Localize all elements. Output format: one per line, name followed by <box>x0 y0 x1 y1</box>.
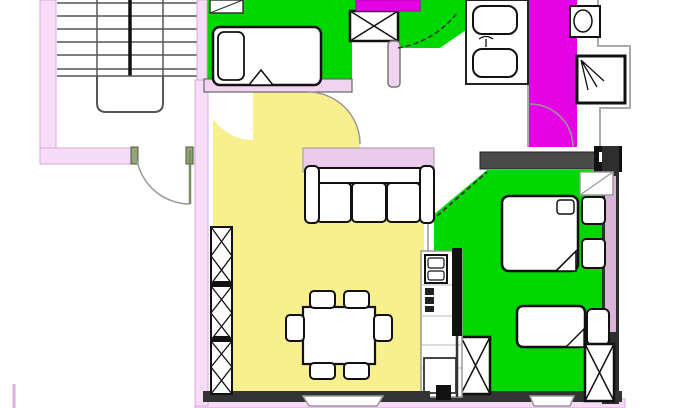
hallway-west-wall <box>195 80 208 406</box>
stove-knob <box>425 306 434 312</box>
stair-left-wall <box>40 0 56 164</box>
nightstand-1 <box>582 197 605 224</box>
stair-right-wall <box>197 0 207 80</box>
sofa-armrest <box>420 166 434 223</box>
bed-double-pillow <box>557 200 574 214</box>
sofa-seat <box>352 183 386 222</box>
sofa-armrest <box>305 166 319 223</box>
wall-unit <box>211 341 232 394</box>
toilet <box>473 6 517 34</box>
wall-unit-joint <box>213 336 230 342</box>
stair-door-opening <box>136 146 188 166</box>
window-livingroom <box>303 396 383 406</box>
dining-chair <box>344 363 369 379</box>
floor-plan-svg <box>0 0 680 408</box>
floor-plan <box>0 0 680 408</box>
wall-unit <box>211 286 232 340</box>
sofa-backrest <box>316 168 423 183</box>
dining-chair <box>286 315 304 341</box>
wall-unit <box>211 227 232 284</box>
stove-knob <box>425 297 434 304</box>
dining-chair <box>344 291 369 308</box>
dining-chair <box>374 315 392 341</box>
dining-table <box>303 307 375 364</box>
kitchen-wall <box>452 248 462 336</box>
dining-chair <box>310 291 335 308</box>
sofa-seat <box>387 183 420 222</box>
bed-single-2-pillow <box>587 309 609 345</box>
wall-unit-joint <box>213 281 230 287</box>
sofa-seat <box>317 183 351 222</box>
nightstand-2 <box>582 239 605 268</box>
bidet <box>473 49 517 77</box>
bedroom2-top-wall <box>480 152 602 169</box>
bed-single-1-pillow <box>218 32 244 80</box>
hall-closet-top <box>356 0 420 11</box>
window-bedroom <box>530 396 574 406</box>
kitchen-wall-stub <box>436 385 451 400</box>
stove-knob <box>425 288 434 295</box>
dining-chair <box>310 363 335 379</box>
